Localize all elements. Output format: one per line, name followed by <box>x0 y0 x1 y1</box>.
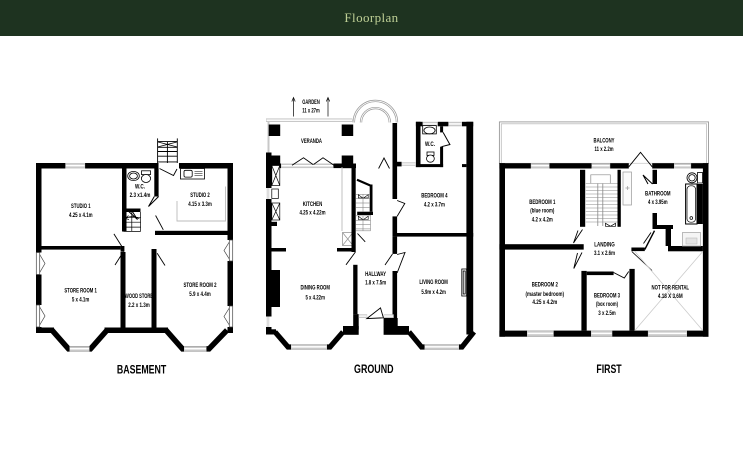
svg-text:4.18 X 3.6M: 4.18 X 3.6M <box>658 293 683 300</box>
svg-text:4.25 x 4.2m: 4.25 x 4.2m <box>532 299 557 306</box>
svg-text:FIRST: FIRST <box>596 363 621 376</box>
svg-text:3.1 x 2.6m: 3.1 x 2.6m <box>594 250 615 257</box>
svg-text:BASEMENT: BASEMENT <box>117 364 166 377</box>
svg-text:11 x 2.2m: 11 x 2.2m <box>595 146 614 153</box>
svg-text:KITCHEN: KITCHEN <box>303 201 323 208</box>
svg-text:HALLWAY: HALLWAY <box>365 271 386 278</box>
svg-text:2.2 x 1.3m: 2.2 x 1.3m <box>128 302 150 309</box>
svg-text:NOT FOR RENTAL: NOT FOR RENTAL <box>652 284 690 291</box>
svg-text:VERANDA: VERANDA <box>301 138 322 145</box>
svg-text:(master bedroom): (master bedroom) <box>526 291 565 298</box>
svg-text:2.3 x1.4m: 2.3 x1.4m <box>130 192 151 199</box>
svg-text:4.25 x 4.1m: 4.25 x 4.1m <box>69 212 93 219</box>
svg-text:LANDING: LANDING <box>594 241 615 248</box>
svg-text:4 x 3.95m: 4 x 3.95m <box>648 199 668 206</box>
svg-text:GROUND: GROUND <box>354 363 394 376</box>
svg-text:STUDIO 1: STUDIO 1 <box>71 203 91 210</box>
svg-text:GARDEN: GARDEN <box>302 99 320 106</box>
svg-text:5 x 4.22m: 5 x 4.22m <box>305 295 325 302</box>
svg-text:BEDROOM 1: BEDROOM 1 <box>529 199 555 206</box>
svg-text:5.9 x 4.4m: 5.9 x 4.4m <box>189 291 211 298</box>
svg-text:BEDROOM 4: BEDROOM 4 <box>421 193 447 200</box>
svg-text:STUDIO 2: STUDIO 2 <box>190 192 210 199</box>
svg-text:BALCONY: BALCONY <box>594 137 615 144</box>
svg-text:1.8 x 7.5m: 1.8 x 7.5m <box>365 279 386 286</box>
svg-text:W.C.: W.C. <box>135 184 145 191</box>
svg-text:5.9m x 4.2m: 5.9m x 4.2m <box>421 289 446 296</box>
svg-text:STORE ROOM 1: STORE ROOM 1 <box>64 287 97 294</box>
svg-text:BEDROOM 2: BEDROOM 2 <box>532 281 558 288</box>
svg-text:STORE ROOM 2: STORE ROOM 2 <box>184 282 217 289</box>
svg-text:W.C.: W.C. <box>425 141 435 148</box>
svg-text:WOOD STORE: WOOD STORE <box>125 293 153 300</box>
svg-text:4.15 x 3.3m: 4.15 x 3.3m <box>188 201 212 208</box>
svg-text:DINING ROOM: DINING ROOM <box>300 284 330 291</box>
svg-text:4.2 x 3.7m: 4.2 x 3.7m <box>424 201 445 208</box>
svg-text:BATHROOM: BATHROOM <box>645 190 671 197</box>
svg-text:LIVING ROOM: LIVING ROOM <box>419 279 448 286</box>
svg-text:(box room): (box room) <box>596 301 618 308</box>
svg-text:4.2 x 4.2m: 4.2 x 4.2m <box>532 216 553 223</box>
svg-text:3 x 2.5m: 3 x 2.5m <box>598 310 616 317</box>
svg-text:5 x 4.1m: 5 x 4.1m <box>72 297 90 304</box>
svg-text:4.25 x 4.22m: 4.25 x 4.22m <box>300 210 326 217</box>
svg-text:11 x 27m: 11 x 27m <box>302 107 320 114</box>
svg-text:BEDROOM 3: BEDROOM 3 <box>594 293 620 300</box>
svg-text:(blue room): (blue room) <box>530 208 554 215</box>
